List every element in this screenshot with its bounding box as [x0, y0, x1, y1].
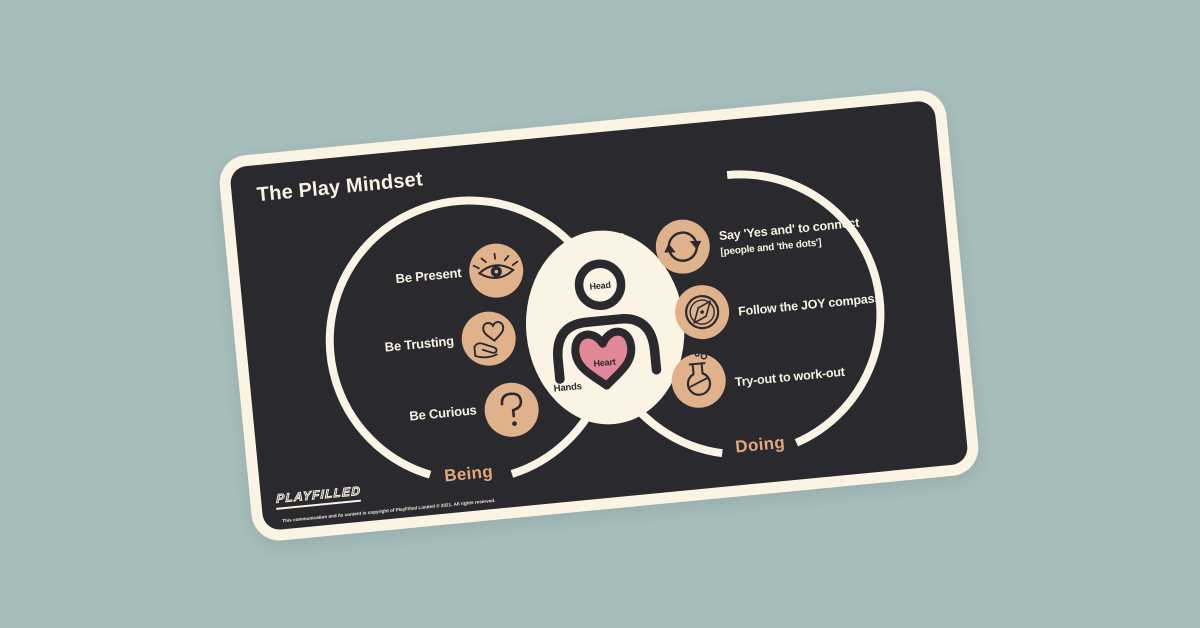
question-mark-icon [482, 380, 541, 439]
eye-icon [467, 241, 526, 300]
venn-diagram [217, 88, 981, 543]
stage: The Play Mindset Be Present Be Trusting … [0, 0, 1200, 628]
hand-heart-icon [459, 309, 518, 368]
play-mindset-card: The Play Mindset Be Present Be Trusting … [217, 88, 981, 543]
